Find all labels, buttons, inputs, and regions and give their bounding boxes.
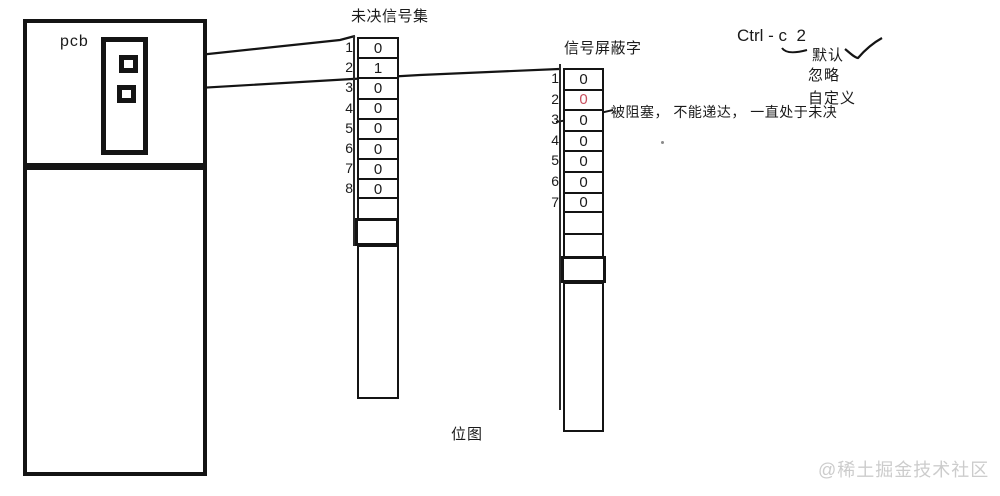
pcb-signal-square-2 (117, 85, 136, 103)
bitmap-cell-number: 4 (337, 100, 353, 116)
bitmap-cell-number: 6 (543, 173, 559, 189)
bitmap-cell-value: 0 (563, 89, 604, 112)
pending-set-guide-line (353, 36, 355, 246)
pcb-lower-box (23, 167, 207, 476)
pending-set-empty-cell (357, 197, 399, 220)
bitmap-cell-number: 5 (337, 120, 353, 136)
shortcut-label: Ctrl - c 2 (737, 26, 806, 46)
pcb-signal-square-1 (119, 55, 138, 73)
pending-set-title: 未决信号集 (351, 5, 429, 26)
mask-word-empty-cell-1 (563, 211, 604, 235)
bitmap-cell-number: 8 (337, 180, 353, 196)
option-custom: 自定义 (808, 87, 856, 108)
blocked-note: 被阻塞， 不能递达， 一直处于未决 (611, 102, 837, 122)
option-ignore: 忽略 (808, 64, 840, 85)
bitmap-cell-number: 6 (337, 140, 353, 156)
dash-stroke (782, 48, 807, 52)
pending-set-tail-box (357, 245, 399, 399)
bitmap-cell-number: 4 (543, 132, 559, 148)
checkmark-icon (845, 38, 882, 58)
bitmap-cell-number: 2 (543, 91, 559, 107)
bitmap-cell-value: 0 (357, 77, 399, 99)
bitmap-cell-number: 5 (543, 152, 559, 168)
watermark: @稀土掘金技术社区 (818, 456, 989, 482)
mask-word-title: 信号屏蔽字 (564, 37, 642, 58)
pending-set-bold-cell (355, 218, 399, 246)
bitmap-label: 位图 (451, 423, 483, 444)
bitmap-cell-number: 7 (337, 160, 353, 176)
bitmap-cell-value: 0 (357, 118, 399, 140)
bitmap-cell-number: 7 (543, 194, 559, 210)
diagram-canvas: pcb 未决信号集 1021304050607080 信号屏蔽字 1020304… (0, 0, 1000, 496)
bitmap-cell-number: 3 (337, 79, 353, 95)
pcb-box: pcb (23, 19, 207, 167)
bitmap-cell-value: 0 (357, 138, 399, 160)
bitmap-cell-value: 1 (357, 57, 399, 79)
bitmap-cell-number: 1 (337, 39, 353, 55)
bitmap-cell-number: 1 (543, 70, 559, 86)
bitmap-cell-number: 2 (337, 59, 353, 75)
stray-dot (661, 141, 664, 144)
bitmap-cell-value: 0 (563, 130, 604, 153)
mask-word-bold-cell (561, 256, 606, 283)
mask-word-guide-line (559, 64, 561, 410)
option-default: 默认 (812, 44, 844, 65)
bitmap-cell-value: 0 (357, 98, 399, 120)
bitmap-cell-number: 3 (543, 111, 559, 127)
mask-word-empty-cell-2 (563, 233, 604, 258)
bitmap-cell-value: 0 (563, 109, 604, 132)
bitmap-cell-value: 0 (357, 37, 399, 59)
mask-word-tail-box (563, 282, 604, 432)
pcb-label: pcb (60, 33, 89, 51)
bitmap-cell-value: 0 (563, 68, 604, 91)
bitmap-cell-value: 0 (563, 150, 604, 173)
bitmap-cell-value: 0 (357, 158, 399, 180)
bitmap-cell-value: 0 (563, 171, 604, 194)
pcb-signal-slot (101, 37, 148, 155)
